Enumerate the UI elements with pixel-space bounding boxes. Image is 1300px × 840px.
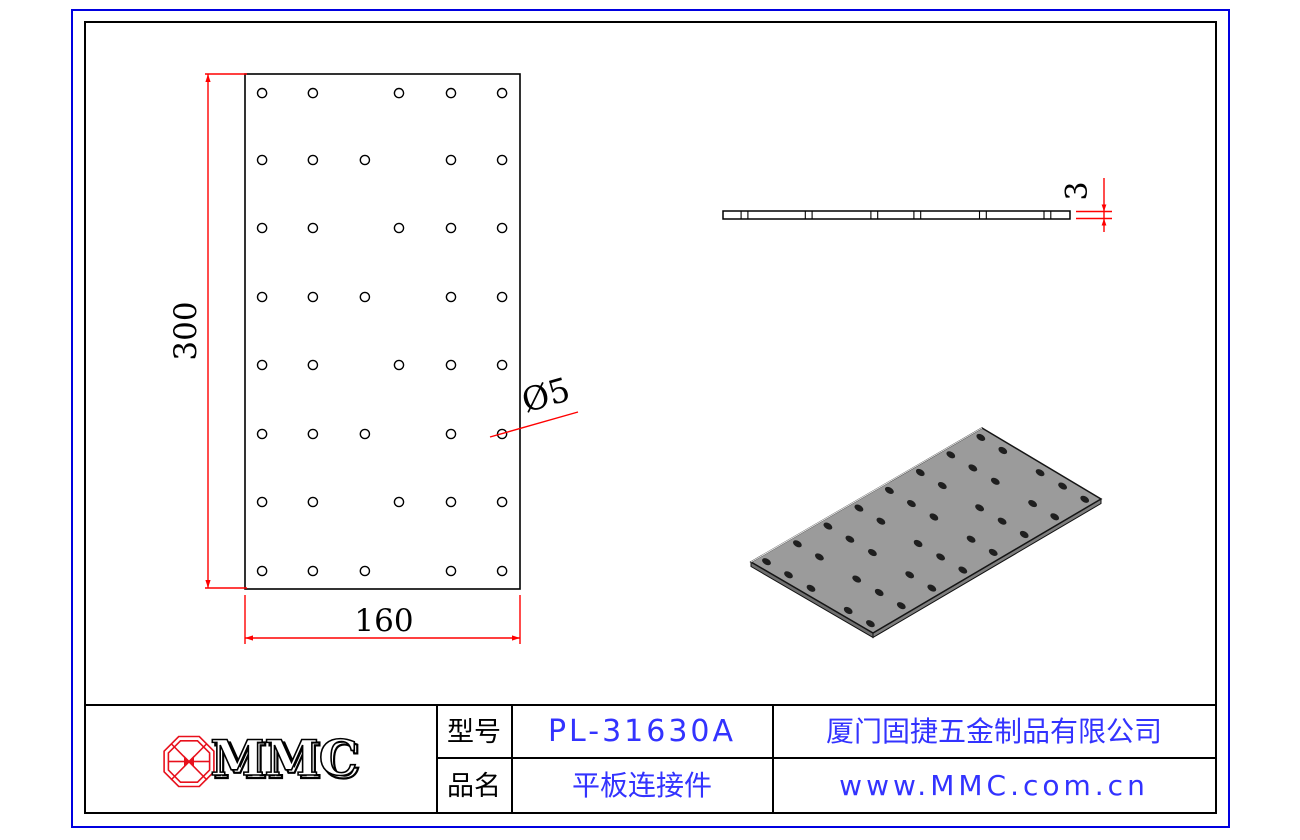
iso-top-face: [751, 428, 1101, 633]
name-label: 品名: [447, 771, 501, 801]
plan-plate-outline: [245, 74, 520, 589]
plan-hole: [498, 497, 507, 506]
plan-hole: [446, 566, 455, 575]
mmc-logo: MMC MMC: [164, 729, 361, 790]
company-name: 厦门固捷五金制品有限公司: [826, 716, 1162, 747]
plan-hole: [394, 89, 403, 98]
plan-hole: [308, 155, 317, 164]
drawing-canvas: 300 160 Ø5 3: [0, 0, 1300, 840]
plan-hole: [394, 360, 403, 369]
plan-hole: [446, 429, 455, 438]
plan-hole: [258, 223, 267, 232]
dim-300-arrow-bottom: [205, 580, 210, 588]
plan-hole: [258, 292, 267, 301]
dim-160-arrow-right: [512, 635, 520, 640]
plan-hole: [498, 292, 507, 301]
model-value: PL-31630A: [548, 714, 736, 749]
plan-hole: [308, 89, 317, 98]
plan-hole: [446, 497, 455, 506]
logo-text: MMC: [210, 729, 357, 787]
dim-300-text: 300: [168, 301, 204, 360]
plan-hole: [308, 292, 317, 301]
plan-hole: [360, 566, 369, 575]
hole-diameter-text: Ø5: [517, 370, 574, 421]
dim-3-text: 3: [1060, 181, 1095, 200]
dim-3-arrow-bottom: [1102, 219, 1107, 226]
plan-hole: [446, 89, 455, 98]
plan-hole: [258, 155, 267, 164]
plan-hole: [360, 155, 369, 164]
plan-hole: [498, 155, 507, 164]
plan-hole: [258, 429, 267, 438]
plan-hole: [446, 155, 455, 164]
side-plate-outline: [723, 211, 1070, 219]
plan-hole: [394, 223, 403, 232]
model-label: 型号: [447, 717, 501, 747]
plan-hole: [308, 566, 317, 575]
plan-hole: [394, 497, 403, 506]
plan-hole: [446, 292, 455, 301]
plan-hole: [308, 223, 317, 232]
plan-hole: [308, 497, 317, 506]
dim-300-arrow-top: [205, 74, 210, 82]
dim-3-arrow-top: [1102, 205, 1107, 212]
iso-view: [751, 428, 1101, 638]
name-value: 平板连接件: [572, 770, 712, 801]
plan-hole: [446, 360, 455, 369]
plan-hole: [258, 497, 267, 506]
plan-hole: [258, 89, 267, 98]
drawing-sheet: 300 160 Ø5 3: [0, 0, 1300, 840]
dim-160-text: 160: [354, 603, 413, 639]
plan-hole: [446, 223, 455, 232]
dim-160-arrow-left: [245, 635, 253, 640]
plan-hole: [498, 360, 507, 369]
plan-hole: [258, 566, 267, 575]
plan-hole: [360, 292, 369, 301]
side-view: [723, 211, 1070, 219]
mmc-logo-icon: [164, 737, 214, 787]
plan-hole: [308, 429, 317, 438]
plan-hole: [498, 89, 507, 98]
dim-300: [205, 74, 247, 588]
plan-hole: [498, 223, 507, 232]
plan-hole: [498, 566, 507, 575]
plan-hole: [360, 429, 369, 438]
plan-hole: [308, 360, 317, 369]
website-text: www.MMC.com.cn: [839, 769, 1149, 802]
plan-hole: [258, 360, 267, 369]
plan-view: [245, 74, 520, 589]
